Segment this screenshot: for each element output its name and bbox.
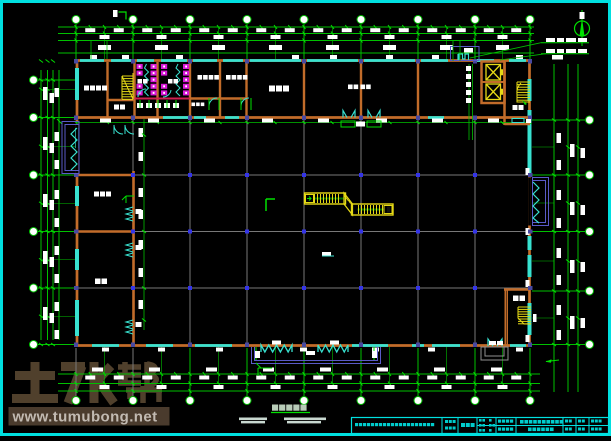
svg-text:www.tumubong.net: www.tumubong.net bbox=[12, 409, 158, 426]
